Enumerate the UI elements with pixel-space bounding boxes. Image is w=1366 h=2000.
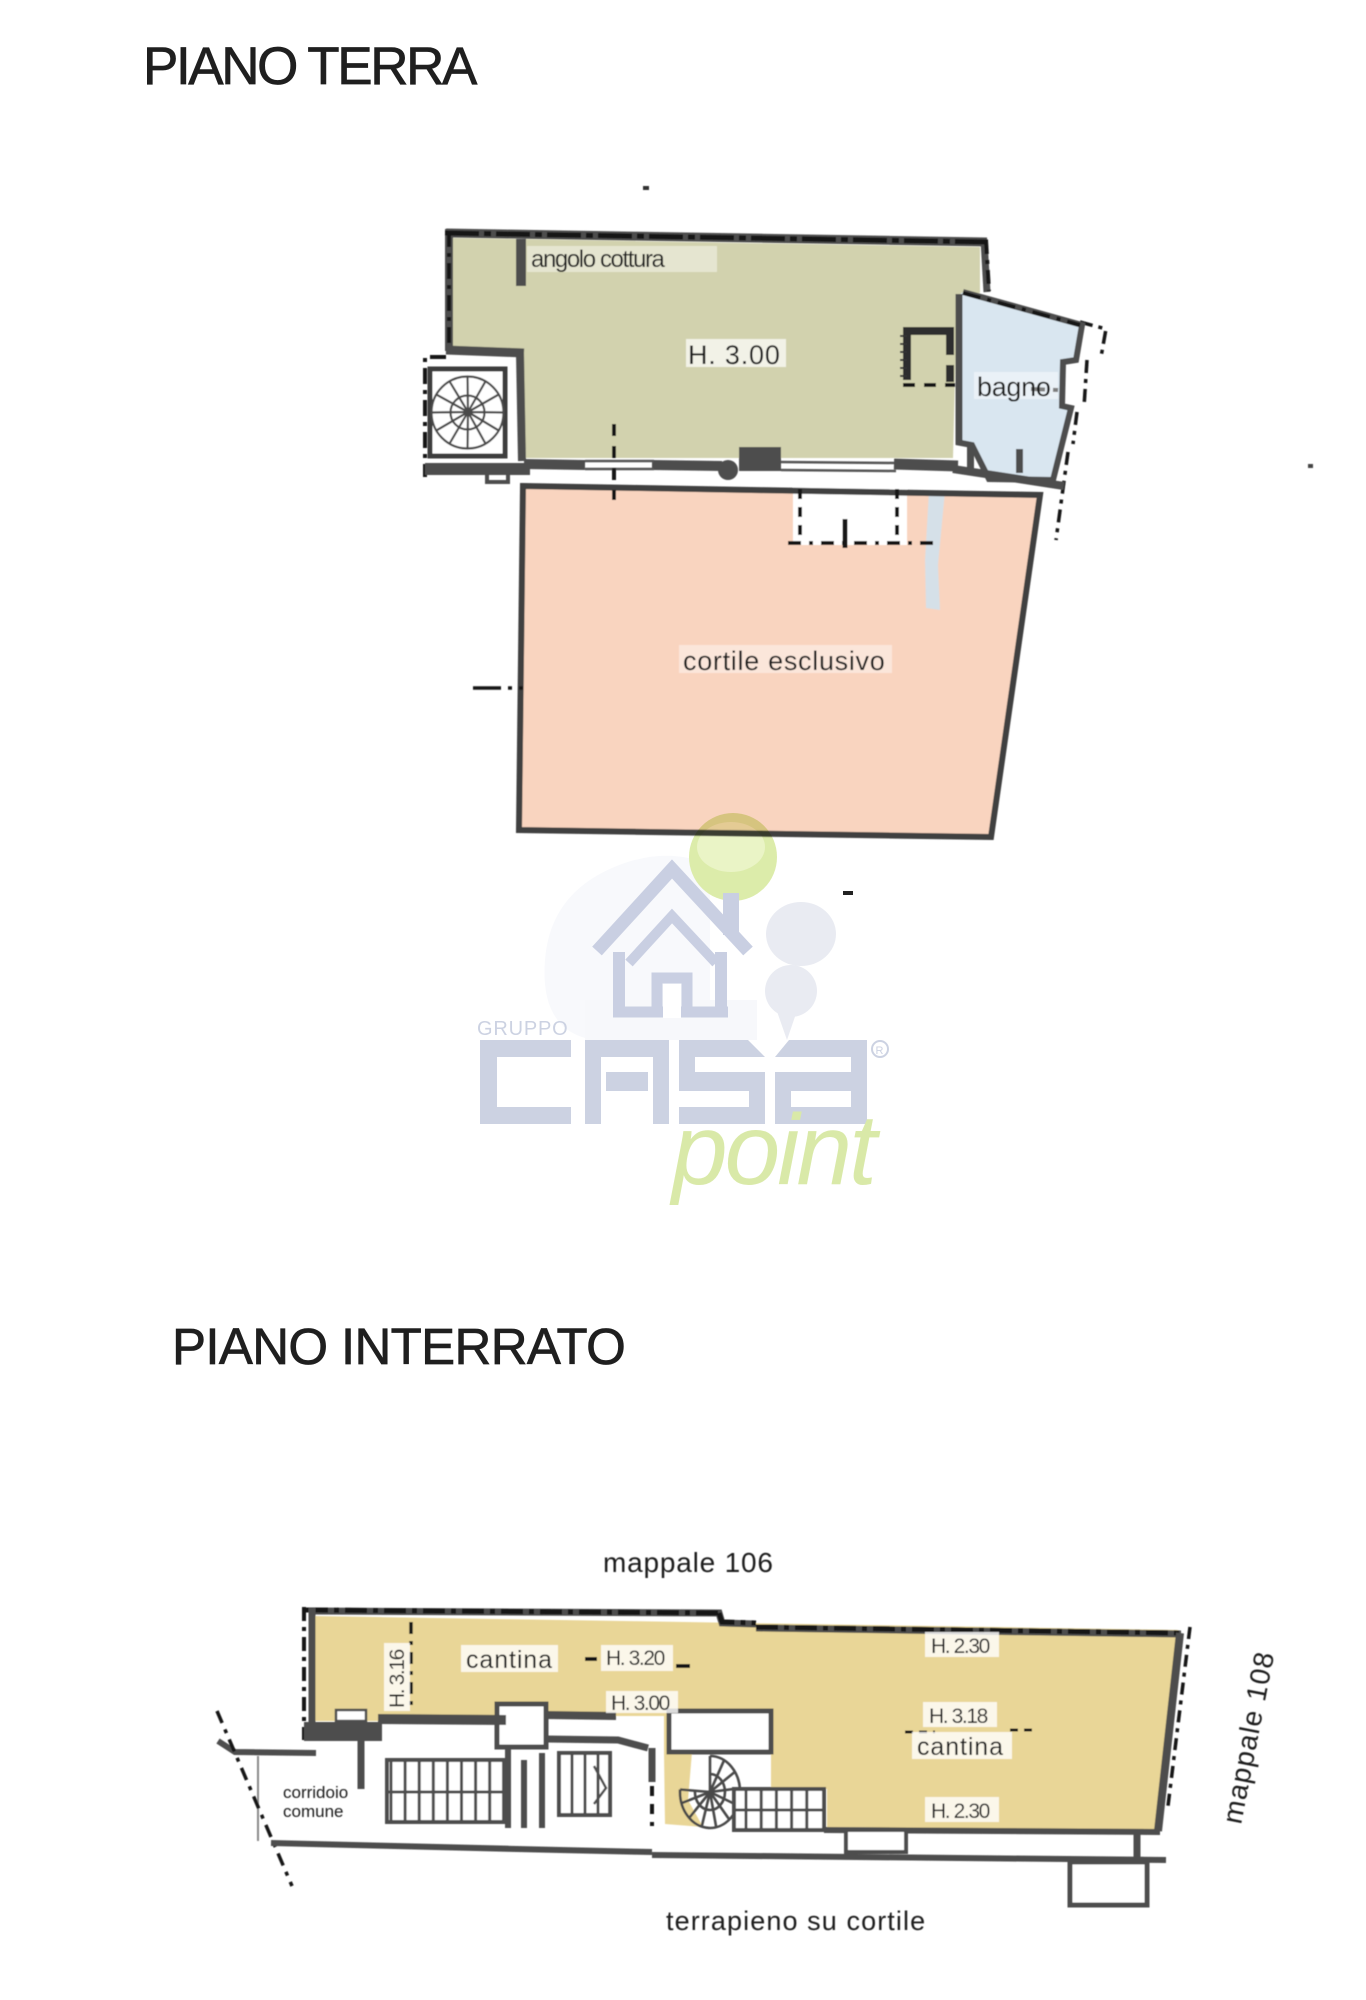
svg-text:H. 3.16: H. 3.16 [386, 1649, 409, 1708]
svg-text:bagno: bagno [977, 372, 1051, 402]
svg-text:GRUPPO: GRUPPO [477, 1018, 568, 1040]
svg-text:comune: comune [283, 1802, 343, 1821]
svg-text:angolo cottura: angolo cottura [531, 246, 666, 273]
svg-text:mappale 106: mappale 106 [603, 1547, 774, 1578]
svg-text:PIANO INTERRATO: PIANO INTERRATO [172, 1318, 625, 1375]
svg-text:cantina: cantina [917, 1733, 1004, 1761]
svg-text:PIANO TERRA: PIANO TERRA [143, 37, 478, 96]
svg-text:cortile esclusivo: cortile esclusivo [683, 646, 885, 676]
svg-text:terrapieno su cortile: terrapieno su cortile [666, 1906, 926, 1936]
svg-text:H. 3.20: H. 3.20 [606, 1647, 665, 1670]
svg-text:R: R [876, 1045, 884, 1057]
svg-text:H. 3.00: H. 3.00 [688, 340, 781, 370]
svg-text:H. 3.18: H. 3.18 [929, 1705, 988, 1728]
svg-text:point: point [669, 1094, 881, 1206]
svg-text:H. 2.30: H. 2.30 [931, 1635, 990, 1658]
svg-text:cantina: cantina [466, 1646, 553, 1674]
svg-text:H. 2.30: H. 2.30 [931, 1800, 990, 1823]
svg-text:H. 3.00: H. 3.00 [611, 1692, 670, 1715]
svg-text:corridoio: corridoio [283, 1783, 348, 1802]
